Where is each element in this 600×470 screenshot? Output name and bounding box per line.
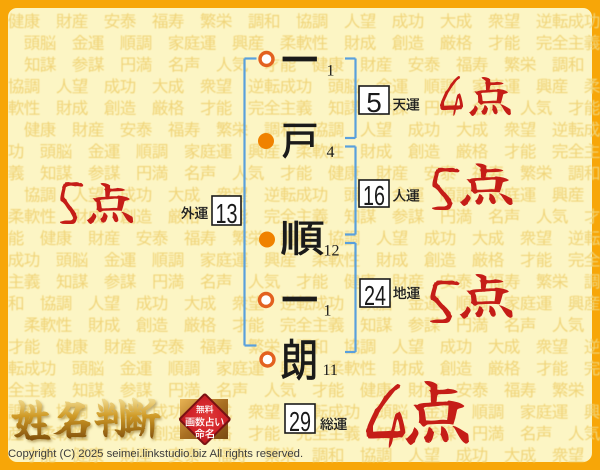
svg-text:24: 24 [364,280,386,311]
svg-text:11: 11 [323,362,338,379]
svg-text:Copyright (C) 2025 seimei.link: Copyright (C) 2025 seimei.linkstudio.biz… [8,448,303,460]
svg-text:1: 1 [324,303,332,320]
svg-text:29: 29 [289,406,311,437]
svg-text:12: 12 [324,243,340,260]
svg-text:5: 5 [366,87,382,118]
svg-text:4: 4 [327,144,335,161]
svg-text:16: 16 [363,180,385,211]
svg-text:1: 1 [327,63,335,80]
svg-text:13: 13 [216,198,238,229]
